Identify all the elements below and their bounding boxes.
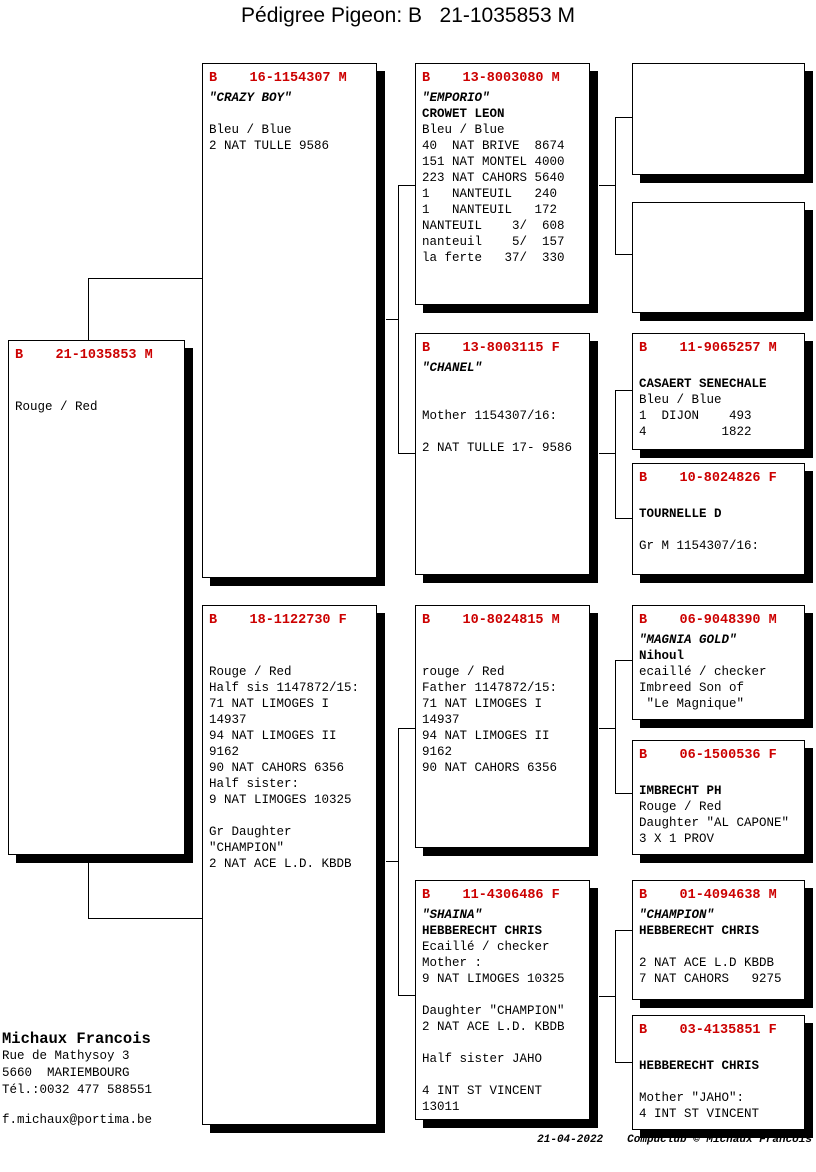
connector-line [615, 660, 616, 793]
pedigree-line: 9162 [209, 744, 373, 760]
pedigree-line [422, 987, 586, 1003]
pedigree-line: Bleu / Blue [209, 122, 373, 138]
pedigree-line [15, 367, 181, 383]
pedigree-line: Gr Daughter [209, 824, 373, 840]
connector-line [398, 185, 399, 453]
owner-block: Michaux Francois Rue de Mathysoy 3 5660 … [2, 1030, 152, 1127]
pedigree-line: Bleu / Blue [422, 122, 586, 138]
connector-line [88, 278, 89, 340]
pedigree-box-dam-dam: B 11-4306486 F "SHAINA" HEBBERECHT CHRIS… [415, 880, 590, 1120]
pedigree-line: NANTEUIL 3/ 608 [422, 218, 586, 234]
pedigree-line: Bleu / Blue [639, 392, 801, 408]
pedigree-box-dam-sire-dam: B 06-1500536 F IMBRECHT PH Rouge / Red D… [632, 740, 805, 855]
ring-number: B 03-4135851 F [639, 1020, 801, 1042]
connector-line [599, 453, 615, 454]
pedigree-line: 40 NAT BRIVE 8674 [422, 138, 586, 154]
ring-number: B 10-8024815 M [422, 610, 586, 632]
fancier-name: HEBBERECHT CHRIS [639, 1058, 801, 1074]
connector-line [615, 518, 632, 519]
pedigree-box-dam-dam-dam: B 03-4135851 F HEBBERECHT CHRIS Mother "… [632, 1015, 805, 1130]
connector-line [386, 319, 398, 320]
pedigree-line: 90 NAT CAHORS 6356 [209, 760, 373, 776]
pedigree-line [209, 808, 373, 824]
pedigree-line: Mother : [422, 955, 586, 971]
pedigree-line: 94 NAT LIMOGES II [422, 728, 586, 744]
pedigree-box-sire-dam-dam: B 10-8024826 F TOURNELLE D Gr M 1154307/… [632, 463, 805, 575]
pedigree-line: la ferte 37/ 330 [422, 250, 586, 266]
pedigree-line [639, 1074, 801, 1090]
pedigree-line: 151 NAT MONTEL 4000 [422, 154, 586, 170]
pedigree-line: Rouge / Red [639, 799, 801, 815]
pedigree-line: 2 NAT TULLE 17- 9586 [422, 440, 586, 456]
pedigree-line: 3 X 1 PROV [639, 831, 801, 847]
pedigree-line: Rouge / Red [15, 399, 181, 415]
pedigree-line [422, 1067, 586, 1083]
pedigree-line: Mother "JAHO": [639, 1090, 801, 1106]
pedigree-line: 2 NAT TULLE 9586 [209, 138, 373, 154]
owner-address-line1: Rue de Mathysoy 3 [2, 1048, 152, 1065]
pedigree-line: 71 NAT LIMOGES I [422, 696, 586, 712]
pedigree-box-dam-sire-sire: B 06-9048390 M "MAGNIA GOLD" Nihoul ecai… [632, 605, 805, 720]
pedigree-line: Daughter "AL CAPONE" [639, 815, 801, 831]
owner-name: Michaux Francois [2, 1030, 152, 1048]
pedigree-line [209, 648, 373, 664]
ring-number: B 11-9065257 M [639, 338, 801, 360]
pedigree-line [422, 392, 586, 408]
connector-line [615, 390, 632, 391]
pedigree-line [639, 490, 801, 506]
pedigree-line: 90 NAT CAHORS 6356 [422, 760, 586, 776]
pedigree-line: 94 NAT LIMOGES II [209, 728, 373, 744]
ring-number: B 13-8003115 F [422, 338, 586, 360]
pedigree-line: 71 NAT LIMOGES I [209, 696, 373, 712]
pedigree-line: Half sister JAHO [422, 1051, 586, 1067]
connector-line [398, 728, 415, 729]
pedigree-box-subject: B 21-1035853 M Rouge / Red [8, 340, 185, 855]
pedigree-line [422, 632, 586, 648]
pedigree-line: 9 NAT LIMOGES 10325 [422, 971, 586, 987]
pedigree-line [422, 1035, 586, 1051]
pedigree-box-sire-dam-sire: B 11-9065257 M CASAERT SENECHALE Bleu / … [632, 333, 805, 450]
pedigree-line: Father 1147872/15: [422, 680, 586, 696]
pedigree-box-sire-dam: B 13-8003115 F "CHANEL" Mother 1154307/1… [415, 333, 590, 575]
connector-line [88, 278, 202, 279]
connector-line [88, 855, 89, 918]
pedigree-line: 2 NAT ACE L.D. KBDB [422, 1019, 586, 1035]
pedigree-box-dam-sire: B 10-8024815 M rouge / Red Father 114787… [415, 605, 590, 848]
pedigree-line: Half sister: [209, 776, 373, 792]
pedigree-line: Ecaillé / checker [422, 939, 586, 955]
connector-line [599, 728, 615, 729]
owner-email: f.michaux@portima.be [2, 1113, 152, 1127]
connector-line [88, 918, 202, 919]
pigeon-name: "MAGNIA GOLD" [639, 632, 801, 648]
connector-line [615, 117, 632, 118]
ring-number: B 16-1154307 M [209, 68, 373, 90]
pedigree-line [639, 1042, 801, 1058]
pedigree-line: 13011 [422, 1099, 586, 1115]
ring-number: B 10-8024826 F [639, 468, 801, 490]
fancier-name: CASAERT SENECHALE [639, 376, 801, 392]
ring-number: B 01-4094638 M [639, 885, 801, 907]
pedigree-line: 2 NAT ACE L.D. KBDB [209, 856, 373, 872]
connector-line [386, 861, 398, 862]
pedigree-line: 4 INT ST VINCENT [639, 1106, 801, 1122]
pedigree-line: 223 NAT CAHORS 5640 [422, 170, 586, 186]
connector-line [615, 930, 632, 931]
fancier-name: CROWET LEON [422, 106, 586, 122]
pedigree-box-empty-bottom [632, 202, 805, 313]
pedigree-line: 14937 [422, 712, 586, 728]
connector-line [398, 728, 399, 995]
footer-date: 21-04-2022 [537, 1134, 603, 1146]
page-title: Pédigree Pigeon: B 21-1035853 M [0, 4, 816, 28]
owner-address-line2: 5660 MARIEMBOURG [2, 1065, 152, 1082]
ring-number: B 13-8003080 M [422, 68, 586, 90]
pedigree-line [422, 648, 586, 664]
pedigree-line: "CHAMPION" [209, 840, 373, 856]
pedigree-line: Imbreed Son of [639, 680, 801, 696]
pedigree-line: 9 NAT LIMOGES 10325 [209, 792, 373, 808]
pedigree-line: Daughter "CHAMPION" [422, 1003, 586, 1019]
pedigree-line: ecaillé / checker [639, 664, 801, 680]
pedigree-line: Half sis 1147872/15: [209, 680, 373, 696]
ring-number: B 18-1122730 F [209, 610, 373, 632]
footer-credit: Compuclub © Michaux Francois [627, 1134, 812, 1146]
pedigree-line: 4 1822 [639, 424, 801, 440]
fancier-name: IMBRECHT PH [639, 783, 801, 799]
pedigree-line [422, 376, 586, 392]
pedigree-line: Gr M 1154307/16: [639, 538, 801, 554]
pedigree-line: Rouge / Red [209, 664, 373, 680]
pigeon-name: "SHAINA" [422, 907, 586, 923]
pigeon-name: "EMPORIO" [422, 90, 586, 106]
pedigree-box-sire-sire: B 13-8003080 M "EMPORIO" CROWET LEON Ble… [415, 63, 590, 305]
pedigree-line: 14937 [209, 712, 373, 728]
fancier-name: HEBBERECHT CHRIS [639, 923, 801, 939]
pedigree-line: "Le Magnique" [639, 696, 801, 712]
fancier-name: HEBBERECHT CHRIS [422, 923, 586, 939]
connector-line [615, 660, 632, 661]
connector-line [398, 453, 415, 454]
fancier-name: TOURNELLE D [639, 506, 801, 522]
pigeon-name: "CRAZY BOY" [209, 90, 373, 106]
connector-line [615, 390, 616, 518]
pedigree-line: 1 NANTEUIL 172 [422, 202, 586, 218]
pedigree-line: 1 NANTEUIL 240 [422, 186, 586, 202]
ring-number: B 06-1500536 F [639, 745, 801, 767]
fancier-name: Nihoul [639, 648, 801, 664]
pedigree-line [209, 106, 373, 122]
connector-line [615, 254, 632, 255]
pedigree-box-sire: B 16-1154307 M "CRAZY BOY" Bleu / Blue 2… [202, 63, 377, 578]
pedigree-line: rouge / Red [422, 664, 586, 680]
owner-phone: Tél.:0032 477 588551 [2, 1082, 152, 1099]
ring-number: B 11-4306486 F [422, 885, 586, 907]
pedigree-box-dam-dam-sire: B 01-4094638 M "CHAMPION" HEBBERECHT CHR… [632, 880, 805, 1000]
pigeon-name: "CHAMPION" [639, 907, 801, 923]
connector-line [398, 185, 415, 186]
pedigree-line [422, 424, 586, 440]
connector-line [599, 185, 615, 186]
connector-line [398, 995, 415, 996]
ring-number: B 06-9048390 M [639, 610, 801, 632]
pedigree-line [15, 383, 181, 399]
pedigree-line: Mother 1154307/16: [422, 408, 586, 424]
pedigree-line [639, 939, 801, 955]
pedigree-box-empty-top [632, 63, 805, 175]
connector-line [615, 1062, 632, 1063]
connector-line [599, 996, 615, 997]
pedigree-line: 7 NAT CAHORS 9275 [639, 971, 801, 987]
pedigree-line [639, 522, 801, 538]
connector-line [615, 117, 616, 254]
footer: 21-04-2022 Compuclub © Michaux Francois [537, 1134, 812, 1146]
pedigree-line: 9162 [422, 744, 586, 760]
connector-line [615, 793, 632, 794]
pedigree-line [209, 632, 373, 648]
pedigree-box-dam: B 18-1122730 F Rouge / Red Half sis 1147… [202, 605, 377, 1125]
pigeon-name: "CHANEL" [422, 360, 586, 376]
pedigree-line: nanteuil 5/ 157 [422, 234, 586, 250]
ring-number: B 21-1035853 M [15, 345, 181, 367]
pedigree-line: 2 NAT ACE L.D KBDB [639, 955, 801, 971]
pedigree-line: 1 DIJON 493 [639, 408, 801, 424]
pedigree-line: 4 INT ST VINCENT [422, 1083, 586, 1099]
connector-line [615, 930, 616, 1062]
pedigree-line [639, 767, 801, 783]
pedigree-line [639, 360, 801, 376]
